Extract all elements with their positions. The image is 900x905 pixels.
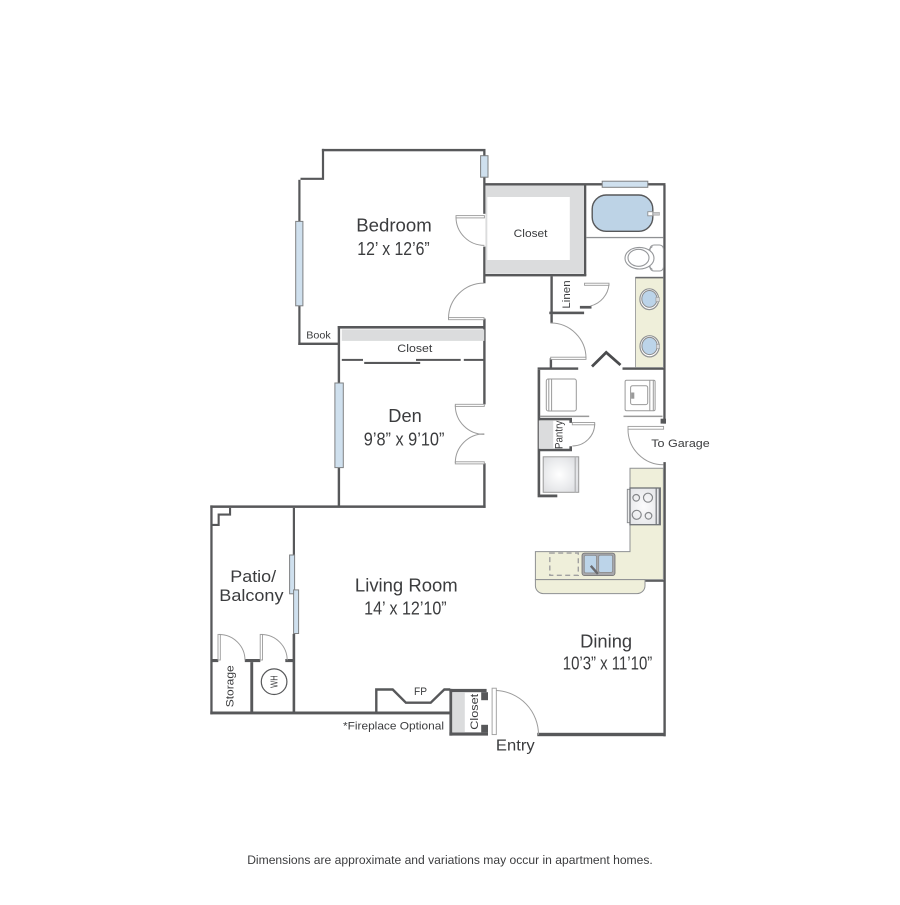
svg-text:Entry: Entry <box>496 738 535 755</box>
svg-text:Linen: Linen <box>561 280 573 308</box>
svg-text:Living Room: Living Room <box>355 576 458 596</box>
svg-text:To Garage: To Garage <box>651 438 710 450</box>
svg-text:FP: FP <box>414 686 427 698</box>
svg-text:Patio/: Patio/ <box>230 567 276 586</box>
svg-text:10’3” x 11’10”: 10’3” x 11’10” <box>563 653 653 673</box>
svg-text:Balcony: Balcony <box>219 586 284 605</box>
svg-text:Book: Book <box>306 331 331 342</box>
svg-text:Closet: Closet <box>469 694 481 730</box>
svg-text:Closet: Closet <box>397 343 433 355</box>
svg-text:Storage: Storage <box>225 665 237 707</box>
svg-text:14’ x 12’10”: 14’ x 12’10” <box>364 598 447 618</box>
svg-text:9’8” x 9’10”: 9’8” x 9’10” <box>364 430 445 450</box>
svg-text:*Fireplace Optional: *Fireplace Optional <box>343 721 444 733</box>
svg-text:WH: WH <box>270 675 281 688</box>
svg-text:Bedroom: Bedroom <box>356 216 432 236</box>
svg-text:12’ x 12’6”: 12’ x 12’6” <box>357 239 429 259</box>
svg-text:Dimensions are approximate and: Dimensions are approximate and variation… <box>247 853 653 867</box>
svg-text:Pantry: Pantry <box>554 420 566 449</box>
svg-text:Den: Den <box>388 406 421 426</box>
svg-text:Closet: Closet <box>514 228 549 240</box>
svg-text:Dining: Dining <box>580 632 632 652</box>
